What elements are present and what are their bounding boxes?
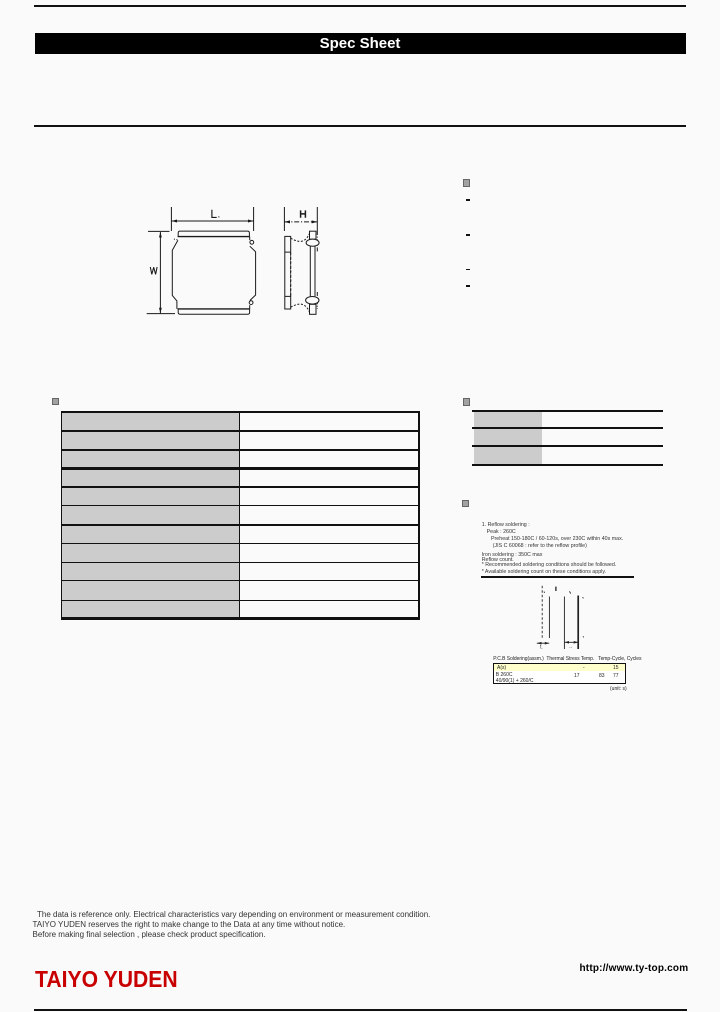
svg-text:t.: t. (540, 645, 543, 651)
svg-text:..: .. (569, 644, 572, 650)
